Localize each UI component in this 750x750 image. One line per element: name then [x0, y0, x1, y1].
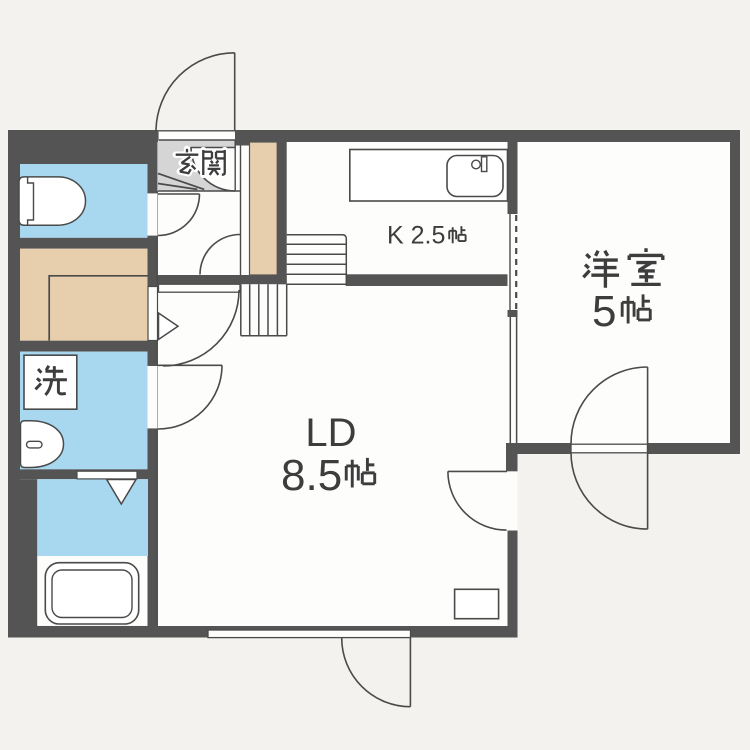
- svg-text:5: 5: [592, 287, 616, 336]
- svg-text:LD: LD: [305, 411, 356, 455]
- svg-text:8.5: 8.5: [281, 451, 342, 500]
- svg-text:K 2.5: K 2.5: [387, 222, 445, 250]
